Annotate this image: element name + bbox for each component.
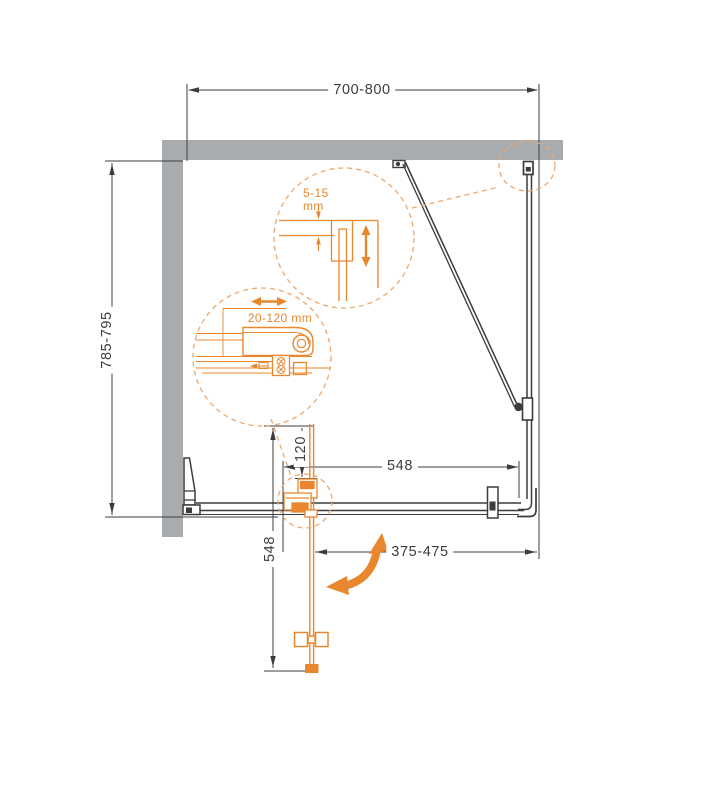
dim-door-width-h [283, 461, 519, 552]
leader-line-top [412, 187, 499, 208]
detail-profile-drawing [196, 297, 330, 376]
door-handle [295, 633, 329, 647]
top-wall-bracket-right [524, 162, 534, 175]
door-open-vertical [310, 424, 314, 667]
detail-label-gap: 5-15 mm [303, 187, 329, 212]
wall-left [162, 140, 183, 537]
hinge-bracket [514, 398, 532, 420]
wall-top [162, 140, 563, 160]
detail-label-gap-unit: mm [303, 200, 329, 213]
dim-label-door-width-v: 548 [263, 531, 278, 567]
dim-label-top-width: 700-800 [328, 83, 395, 98]
diagram-canvas [0, 0, 711, 800]
detail-circle-gap-outline [274, 168, 414, 308]
door-end-cap [306, 665, 319, 673]
rail-bracket [488, 487, 499, 518]
detail-label-profile: 20-120 mm [243, 312, 317, 324]
right-glass-panel [527, 163, 532, 499]
dim-label-left-depth: 785-795 [100, 306, 115, 373]
detail-label-gap-value: 5-15 [303, 187, 329, 200]
dim-label-pivot-offset: 120 [294, 431, 309, 467]
dim-label-door-width-h: 548 [382, 459, 418, 474]
diagram-page: 700-800 785-795 548 120 548 375-475 5-15… [0, 0, 711, 800]
dim-label-side-panel-range: 375-475 [386, 545, 453, 560]
door-pivot-mechanism [284, 479, 317, 517]
bottom-rail [186, 503, 524, 515]
door-open-diagonal [393, 161, 518, 407]
door-swing-arrow [326, 533, 388, 595]
wall-profile-left [183, 458, 200, 515]
